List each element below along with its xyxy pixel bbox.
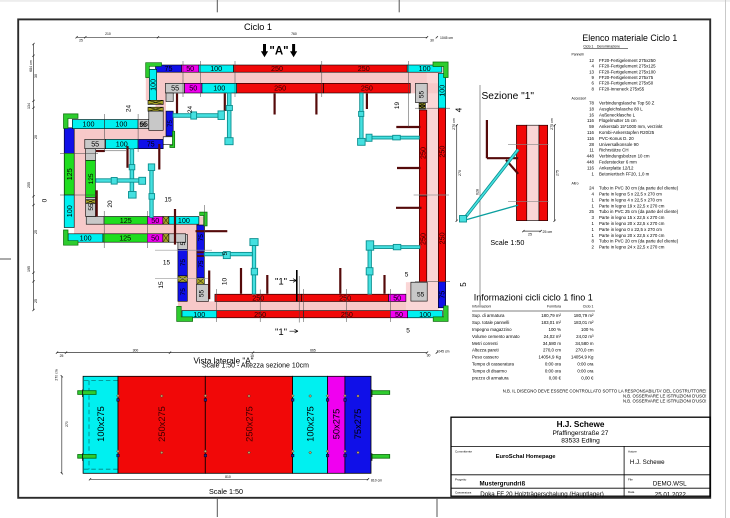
svg-text:75: 75 — [147, 140, 155, 149]
svg-text:N.B. OSSERVARE LE ISTRUZIONI D: N.B. OSSERVARE LE ISTRUZIONI D'USO! — [623, 399, 707, 404]
svg-text:Sup. totale pannelli: Sup. totale pannelli — [472, 320, 509, 325]
svg-text:Casseratura: Casseratura — [455, 490, 472, 494]
svg-text:Betoniertisch FF20, 1,0 m: Betoniertisch FF20, 1,0 m — [599, 171, 650, 176]
svg-text:125: 125 — [120, 216, 132, 225]
svg-text:75: 75 — [198, 260, 205, 268]
svg-text:100: 100 — [193, 310, 205, 319]
svg-text:0:00 ora: 0:00 ora — [577, 362, 594, 367]
svg-text:59: 59 — [589, 124, 594, 129]
svg-text:116: 116 — [587, 136, 595, 141]
svg-text:75: 75 — [198, 234, 205, 242]
svg-text:25: 25 — [79, 39, 83, 43]
svg-text:25.01.2022: 25.01.2022 — [655, 492, 687, 499]
svg-text:18: 18 — [589, 106, 594, 111]
svg-text:15: 15 — [163, 259, 171, 266]
svg-text:24: 24 — [589, 186, 594, 191]
svg-text:25: 25 — [34, 299, 38, 303]
svg-text:100: 100 — [213, 84, 225, 93]
svg-text:14054,9 Kg: 14054,9 Kg — [571, 355, 594, 360]
svg-text:50x275: 50x275 — [332, 409, 342, 440]
svg-text:1045 cm: 1045 cm — [437, 349, 450, 353]
svg-text:FF20-Fertigelement 275x125: FF20-Fertigelement 275x125 — [599, 64, 656, 69]
svg-text:0:00 ora: 0:00 ora — [577, 368, 594, 373]
svg-text:Parte in legno 20 x 22,5 x 270: Parte in legno 20 x 22,5 x 270 cm — [599, 221, 665, 226]
svg-text:Parte in legno 19 x 22,5 x 270: Parte in legno 19 x 22,5 x 270 cm — [599, 203, 665, 208]
svg-text:270 cm: 270 cm — [452, 118, 456, 130]
svg-text:55: 55 — [171, 84, 179, 93]
svg-text:100 %: 100 % — [549, 327, 562, 332]
svg-text:1045 cm: 1045 cm — [440, 36, 453, 40]
svg-text:270: 270 — [458, 170, 462, 176]
svg-text:Parte in legno 24 x 22,5 x 270: Parte in legno 24 x 22,5 x 270 cm — [599, 245, 665, 250]
svg-text:100x275: 100x275 — [305, 406, 315, 442]
svg-text:Altro: Altro — [572, 182, 579, 186]
svg-text:H.J. Schewe: H.J. Schewe — [630, 459, 665, 466]
svg-text:Volume cemento armato: Volume cemento armato — [472, 334, 520, 339]
svg-text:25 cm: 25 cm — [543, 230, 553, 234]
svg-text:116: 116 — [587, 118, 595, 123]
svg-text:Impegno magazzino: Impegno magazzino — [472, 327, 512, 332]
svg-text:13: 13 — [589, 69, 594, 74]
svg-text:250: 250 — [271, 64, 283, 73]
svg-text:Richrstütze CH: Richrstütze CH — [599, 148, 629, 153]
svg-text:20: 20 — [34, 135, 38, 139]
svg-text:100: 100 — [210, 64, 222, 73]
svg-text:Informazioni cicli ciclo 1 fi: Informazioni cicli ciclo 1 fino 1 — [474, 293, 593, 303]
svg-text:FF20-Fertigelement 275x50: FF20-Fertigelement 275x50 — [599, 81, 654, 86]
svg-text:24: 24 — [187, 106, 194, 114]
svg-text:75: 75 — [167, 120, 174, 127]
svg-text:15: 15 — [158, 281, 165, 289]
svg-text:810: 810 — [225, 475, 231, 479]
svg-text:275 cm: 275 cm — [550, 118, 554, 130]
svg-text:0:00 ora: 0:00 ora — [545, 362, 562, 367]
svg-text:34,580 m: 34,580 m — [543, 341, 562, 346]
svg-text:5: 5 — [222, 251, 229, 255]
svg-text:0,00 €: 0,00 € — [549, 375, 562, 380]
svg-text:5: 5 — [406, 328, 410, 335]
svg-text:50: 50 — [151, 234, 159, 243]
svg-text:Parte in legno 5 x 22,5 x 270: Parte in legno 5 x 22,5 x 270 cm — [599, 192, 662, 197]
svg-text:FF20-Fertigelement 275x250: FF20-Fertigelement 275x250 — [599, 58, 656, 63]
svg-text:Accessori: Accessori — [572, 97, 587, 101]
svg-text:Außenecklasche L: Außenecklasche L — [599, 112, 636, 117]
svg-text:30: 30 — [427, 354, 431, 358]
svg-text:55: 55 — [419, 91, 426, 99]
svg-text:Parte in legno 4 x 22,5 x 270: Parte in legno 4 x 22,5 x 270 cm — [599, 197, 662, 202]
svg-text:Ciclo 1: Ciclo 1 — [244, 22, 272, 32]
svg-text:25: 25 — [34, 230, 38, 234]
svg-text:0,00 €: 0,00 € — [581, 375, 594, 380]
svg-text:Parte in legno 20 x 22,5 x 270: Parte in legno 20 x 22,5 x 270 cm — [599, 233, 665, 238]
svg-text:Ciclo 1: Ciclo 1 — [583, 304, 594, 308]
svg-text:Tempo di casseratura: Tempo di casseratura — [472, 362, 515, 367]
svg-text:100: 100 — [438, 85, 447, 97]
svg-text:Doka FF 20 Holzträgerschalung: Doka FF 20 Holzträgerschalung (Hauptlage… — [480, 491, 603, 498]
svg-text:Verbindungslasche Top 50 Z: Verbindungslasche Top 50 Z — [599, 101, 655, 106]
svg-text:250: 250 — [358, 64, 370, 73]
svg-text:116: 116 — [587, 165, 595, 170]
svg-text:FF20-Fertigelement 275x75: FF20-Fertigelement 275x75 — [599, 75, 654, 80]
svg-text:15: 15 — [164, 197, 172, 204]
svg-text:125: 125 — [65, 168, 74, 180]
svg-text:180,79 m²: 180,79 m² — [574, 313, 594, 318]
svg-text:125: 125 — [119, 234, 131, 243]
svg-text:250: 250 — [419, 233, 428, 245]
svg-text:Ciclo 1: Ciclo 1 — [583, 44, 593, 48]
svg-text:100x275: 100x275 — [96, 406, 106, 442]
svg-text:Pfaffingerstraße 27: Pfaffingerstraße 27 — [553, 430, 609, 437]
svg-text:250: 250 — [438, 146, 447, 158]
svg-text:50: 50 — [186, 64, 194, 73]
svg-text:25: 25 — [60, 354, 64, 358]
svg-text:30: 30 — [34, 74, 38, 78]
svg-text:20: 20 — [107, 200, 114, 208]
svg-text:75: 75 — [165, 64, 173, 73]
svg-text:10: 10 — [222, 278, 229, 286]
svg-text:Scale 1:50: Scale 1:50 — [490, 238, 524, 247]
svg-text:183,01 m²: 183,01 m² — [541, 320, 561, 325]
svg-text:100 %: 100 % — [581, 327, 594, 332]
svg-text:684 cm: 684 cm — [29, 60, 33, 72]
svg-text:Pannelli: Pannelli — [572, 52, 584, 56]
svg-text:183,01 m²: 183,01 m² — [574, 320, 594, 325]
svg-text:250: 250 — [438, 232, 447, 244]
svg-text:250: 250 — [361, 84, 373, 93]
svg-text:Mustergrundriß: Mustergrundriß — [480, 481, 526, 488]
svg-text:270 cm: 270 cm — [55, 369, 59, 380]
svg-text:19: 19 — [394, 102, 401, 110]
svg-text:"1": "1" — [275, 276, 287, 287]
svg-text:100: 100 — [116, 140, 128, 149]
svg-text:270,0 cm: 270,0 cm — [575, 348, 593, 353]
svg-text:File: File — [628, 478, 633, 482]
svg-text:Ankerstab 15*1000 mm, verzinkt: Ankerstab 15*1000 mm, verzinkt — [599, 124, 663, 129]
svg-text:0: 0 — [42, 198, 49, 202]
svg-text:Committente: Committente — [455, 450, 472, 454]
svg-text:250: 250 — [341, 310, 353, 319]
svg-text:34,580 m: 34,580 m — [575, 341, 594, 346]
svg-text:180,79 m²: 180,79 m² — [541, 313, 561, 318]
svg-text:Fornitura: Fornitura — [547, 304, 561, 308]
svg-text:210: 210 — [105, 32, 111, 36]
svg-text:100: 100 — [178, 216, 190, 225]
svg-text:24: 24 — [126, 105, 133, 113]
svg-text:Progetto: Progetto — [455, 478, 467, 482]
svg-text:116: 116 — [587, 130, 595, 135]
svg-text:Tempo di disarmo: Tempo di disarmo — [472, 368, 507, 373]
svg-text:250: 250 — [419, 147, 428, 159]
svg-text:DEMO.WSL: DEMO.WSL — [653, 481, 687, 488]
svg-text:25: 25 — [528, 233, 532, 237]
svg-text:55: 55 — [417, 292, 425, 299]
svg-text:5: 5 — [459, 282, 468, 287]
svg-text:75x275: 75x275 — [353, 409, 363, 440]
svg-text:75: 75 — [180, 259, 187, 267]
svg-text:250x275: 250x275 — [244, 406, 254, 442]
svg-text:100: 100 — [83, 120, 95, 129]
svg-text:Sup. di armatura: Sup. di armatura — [472, 313, 505, 318]
svg-text:Altezza pareti: Altezza pareti — [472, 348, 499, 353]
svg-text:Metri correnti: Metri correnti — [472, 341, 498, 346]
svg-text:50: 50 — [393, 293, 401, 302]
svg-text:prezzo di armatura: prezzo di armatura — [472, 375, 509, 380]
svg-text:300: 300 — [133, 348, 139, 352]
svg-text:100: 100 — [115, 120, 127, 129]
svg-text:Kombi-Ankerstopfen R20/25: Kombi-Ankerstopfen R20/25 — [599, 130, 655, 135]
svg-text:810 cm: 810 cm — [371, 478, 382, 482]
svg-text:0:00 ora: 0:00 ora — [545, 368, 562, 373]
svg-text:4: 4 — [455, 107, 464, 112]
svg-text:Peso cassero: Peso cassero — [472, 355, 499, 360]
svg-text:Federstecker 6 mm: Federstecker 6 mm — [599, 160, 637, 165]
svg-text:Tubo in PVC 20 cm (da parte de: Tubo in PVC 20 cm (da parte del cliente) — [599, 239, 679, 244]
svg-text:55: 55 — [91, 140, 99, 149]
svg-text:Parte in legno 0 x 22,5 x 270: Parte in legno 0 x 22,5 x 270 cm — [599, 227, 662, 232]
svg-text:275: 275 — [556, 170, 560, 176]
svg-text:50: 50 — [189, 84, 197, 93]
svg-text:24,02 m³: 24,02 m³ — [544, 334, 562, 339]
svg-text:134: 134 — [27, 103, 31, 109]
svg-text:50: 50 — [395, 310, 403, 319]
svg-text:FF20-Inneneck 275x55: FF20-Inneneck 275x55 — [599, 86, 645, 91]
svg-text:100: 100 — [65, 205, 74, 217]
svg-text:83533 Edling: 83533 Edling — [561, 437, 600, 444]
svg-text:250: 250 — [252, 293, 264, 302]
svg-text:Autore: Autore — [628, 450, 637, 454]
svg-text:Informazioni: Informazioni — [472, 304, 491, 308]
svg-text:55: 55 — [139, 122, 147, 129]
svg-text:11: 11 — [589, 148, 594, 153]
svg-text:195: 195 — [27, 266, 31, 272]
svg-text:448: 448 — [587, 154, 595, 159]
svg-text:PVC-Konus D. 20: PVC-Konus D. 20 — [599, 136, 634, 141]
svg-text:14054,9 Kg: 14054,9 Kg — [539, 355, 562, 360]
svg-text:665: 665 — [310, 348, 316, 352]
svg-text:H.J. Schewe: H.J. Schewe — [557, 420, 605, 429]
svg-text:Scale 1:50 - Altezza sezione 1: Scale 1:50 - Altezza sezione 10cm — [202, 363, 309, 370]
svg-text:75: 75 — [438, 291, 447, 299]
svg-text:12: 12 — [589, 58, 594, 63]
svg-text:16: 16 — [589, 112, 594, 117]
svg-text:Sezione "1": Sezione "1" — [482, 91, 535, 102]
svg-text:Universalkonsole 90: Universalkonsole 90 — [599, 142, 639, 147]
svg-text:760: 760 — [291, 32, 297, 36]
svg-text:100: 100 — [419, 64, 431, 73]
svg-text:Ausgleichslasche 80 L: Ausgleichslasche 80 L — [599, 106, 643, 111]
svg-text:255: 255 — [27, 182, 31, 188]
svg-text:55: 55 — [199, 290, 206, 298]
svg-text:"A": "A" — [269, 46, 288, 58]
svg-text:100: 100 — [419, 310, 431, 319]
svg-text:30: 30 — [430, 38, 434, 42]
svg-text:Data: Data — [628, 490, 635, 494]
svg-text:628: 628 — [476, 189, 480, 195]
svg-text:55: 55 — [88, 203, 95, 211]
svg-text:100: 100 — [80, 234, 92, 243]
svg-text:Scale 1:50: Scale 1:50 — [209, 487, 243, 496]
svg-text:Tubo in PVC 25 cm (da parte de: Tubo in PVC 25 cm (da parte del cliente) — [599, 209, 679, 214]
svg-text:125: 125 — [88, 173, 95, 184]
svg-text:270,0 cm: 270,0 cm — [543, 348, 561, 353]
svg-text:250x275: 250x275 — [157, 406, 167, 442]
svg-text:Flügelmutter 15 cm: Flügelmutter 15 cm — [599, 118, 637, 123]
svg-text:Parte in legno 15 x 22,5 x 270: Parte in legno 15 x 22,5 x 270 cm — [599, 215, 665, 220]
svg-text:28: 28 — [589, 142, 594, 147]
svg-text:5: 5 — [405, 272, 409, 279]
svg-text:Denominazione: Denominazione — [597, 44, 620, 48]
svg-text:250: 250 — [274, 84, 286, 93]
svg-text:FF20-Fertigelement 275x100: FF20-Fertigelement 275x100 — [599, 69, 656, 74]
svg-text:Tubo in PVC 30 cm (da parte de: Tubo in PVC 30 cm (da parte del cliente) — [599, 186, 679, 191]
svg-text:270: 270 — [65, 421, 69, 427]
svg-text:Verbindungsbolzen 10 cm: Verbindungsbolzen 10 cm — [599, 154, 650, 159]
svg-text:EuroSchal Homepage: EuroSchal Homepage — [496, 454, 557, 460]
svg-text:78: 78 — [589, 101, 594, 106]
svg-text:250: 250 — [339, 293, 351, 302]
svg-text:100: 100 — [149, 79, 158, 91]
svg-text:24,02 m³: 24,02 m³ — [576, 334, 594, 339]
svg-text:25: 25 — [589, 209, 594, 214]
svg-text:448: 448 — [587, 160, 595, 165]
svg-text:Elenco materiale Ciclo 1: Elenco materiale Ciclo 1 — [582, 33, 677, 43]
svg-text:75: 75 — [180, 288, 187, 296]
svg-text:"1": "1" — [275, 327, 287, 338]
svg-text:Ankerplatte 12/12: Ankerplatte 12/12 — [599, 165, 634, 170]
